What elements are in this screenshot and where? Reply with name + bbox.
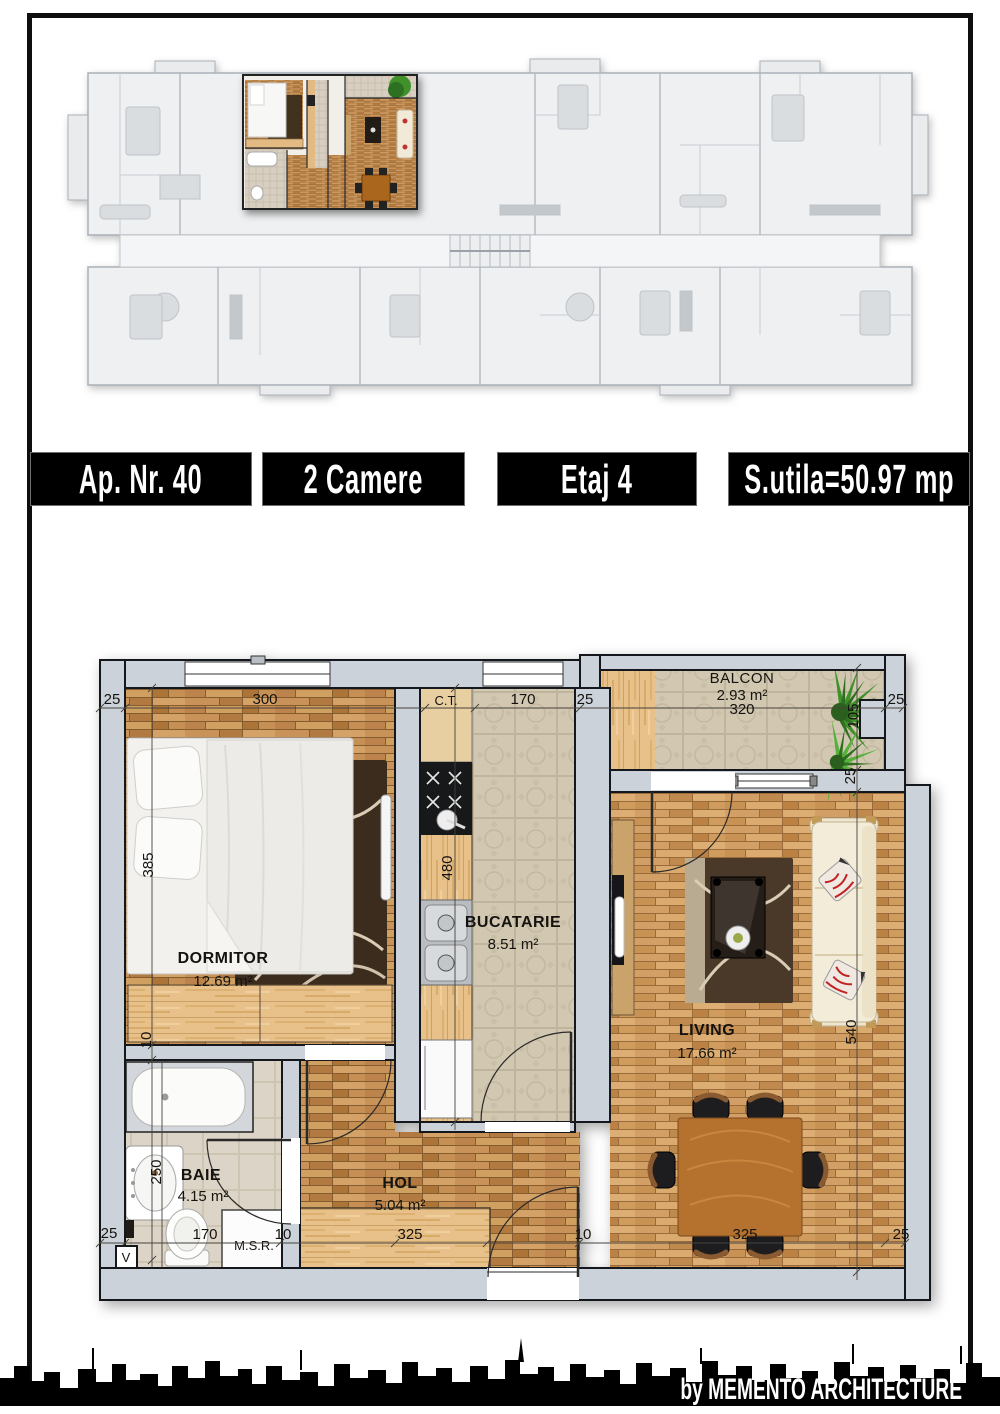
dimension-label: 25 bbox=[893, 1226, 910, 1243]
dimension-label: 320 bbox=[729, 701, 754, 718]
overview-staircase bbox=[450, 235, 530, 267]
dimension-label: 25 bbox=[101, 1225, 118, 1242]
bedroom-mirror bbox=[381, 795, 391, 900]
room-area-bucatarie: 8.51 m² bbox=[488, 936, 539, 953]
credit-text: by MEMENTO ARCHITECTURE bbox=[680, 1374, 962, 1406]
room-label-bucatarie: BUCATARIE bbox=[465, 914, 561, 931]
dimension-label: 105 bbox=[845, 703, 862, 728]
dimension-label: 540 bbox=[843, 1019, 860, 1044]
banner-floor: Etaj 4 bbox=[497, 452, 697, 506]
room-label-balcon: BALCON bbox=[710, 670, 775, 687]
room-area-living: 17.66 m² bbox=[677, 1045, 736, 1062]
kitchen-window bbox=[483, 662, 563, 686]
boiler-label: C.T. bbox=[434, 693, 457, 708]
dimension-label: 10 bbox=[275, 1226, 292, 1243]
floor-label: Etaj 4 bbox=[561, 456, 633, 503]
dimension-label: 170 bbox=[510, 691, 535, 708]
dimension-label: 10 bbox=[138, 1032, 155, 1049]
bedroom-furniture bbox=[127, 738, 392, 1042]
room-label-dormitor: DORMITOR bbox=[178, 950, 269, 967]
dimension-label: 325 bbox=[732, 1226, 757, 1243]
banner-apartment-number: Ap. Nr. 40 bbox=[30, 452, 252, 506]
dimension-label: 250 bbox=[148, 1159, 165, 1184]
washing-machine-label: M.S.R. bbox=[234, 1238, 274, 1253]
dimension-label: 25 bbox=[842, 768, 859, 785]
bathtub-icon bbox=[126, 1062, 253, 1132]
banner-room-count: 2 Camere bbox=[262, 452, 465, 506]
dimension-label: 25 bbox=[577, 691, 594, 708]
usable-area-label: S.utila=50.97 mp bbox=[744, 456, 954, 503]
sofa-icon bbox=[810, 816, 878, 1028]
hall-cabinet bbox=[295, 1208, 490, 1268]
balcony-window bbox=[731, 774, 817, 788]
room-area-hol: 5.04 m² bbox=[375, 1197, 426, 1214]
ventilation-shaft: V bbox=[116, 1246, 137, 1268]
dimension-label: 300 bbox=[252, 691, 277, 708]
building-overview-plan bbox=[60, 55, 940, 405]
room-label-living: LIVING bbox=[679, 1022, 735, 1039]
dimension-label: 480 bbox=[439, 855, 456, 880]
kitchen-floor bbox=[472, 688, 575, 1122]
apartment-floor-plan: M.S.R. bbox=[95, 650, 975, 1305]
dimension-label: 325 bbox=[397, 1226, 422, 1243]
bed-icon bbox=[127, 738, 353, 974]
shaft-label: V bbox=[122, 1250, 131, 1265]
banner-usable-area: S.utila=50.97 mp bbox=[728, 452, 970, 506]
dimension-label: 10 bbox=[575, 1226, 592, 1243]
overview-highlighted-apartment bbox=[243, 75, 417, 209]
flyer-page: Ap. Nr. 40 2 Camere Etaj 4 S.utila=50.97… bbox=[0, 0, 1000, 1414]
room-area-dormitor: 12.69 m² bbox=[193, 973, 252, 990]
fridge-icon bbox=[420, 1040, 472, 1118]
info-banner: Ap. Nr. 40 2 Camere Etaj 4 S.utila=50.97… bbox=[0, 452, 1000, 506]
room-area-baie: 4.15 m² bbox=[178, 1188, 229, 1205]
kitchen-sink-icon bbox=[420, 900, 472, 985]
room-label-baie: BAIE bbox=[181, 1167, 221, 1184]
room-count-label: 2 Camere bbox=[304, 456, 423, 503]
kitchen-furniture bbox=[420, 688, 472, 1130]
dimension-label: 25 bbox=[104, 691, 121, 708]
room-label-hol: HOL bbox=[382, 1175, 417, 1192]
soundbar bbox=[615, 897, 624, 957]
stove-icon bbox=[420, 762, 472, 835]
dimension-label: 25 bbox=[888, 691, 905, 708]
overview-building-gray bbox=[68, 59, 928, 395]
dining-table-icon bbox=[678, 1118, 802, 1236]
coffee-table-icon bbox=[711, 877, 765, 958]
apartment-number-label: Ap. Nr. 40 bbox=[79, 456, 202, 503]
dimension-label: 385 bbox=[140, 852, 157, 877]
dimension-label: 170 bbox=[192, 1226, 217, 1243]
